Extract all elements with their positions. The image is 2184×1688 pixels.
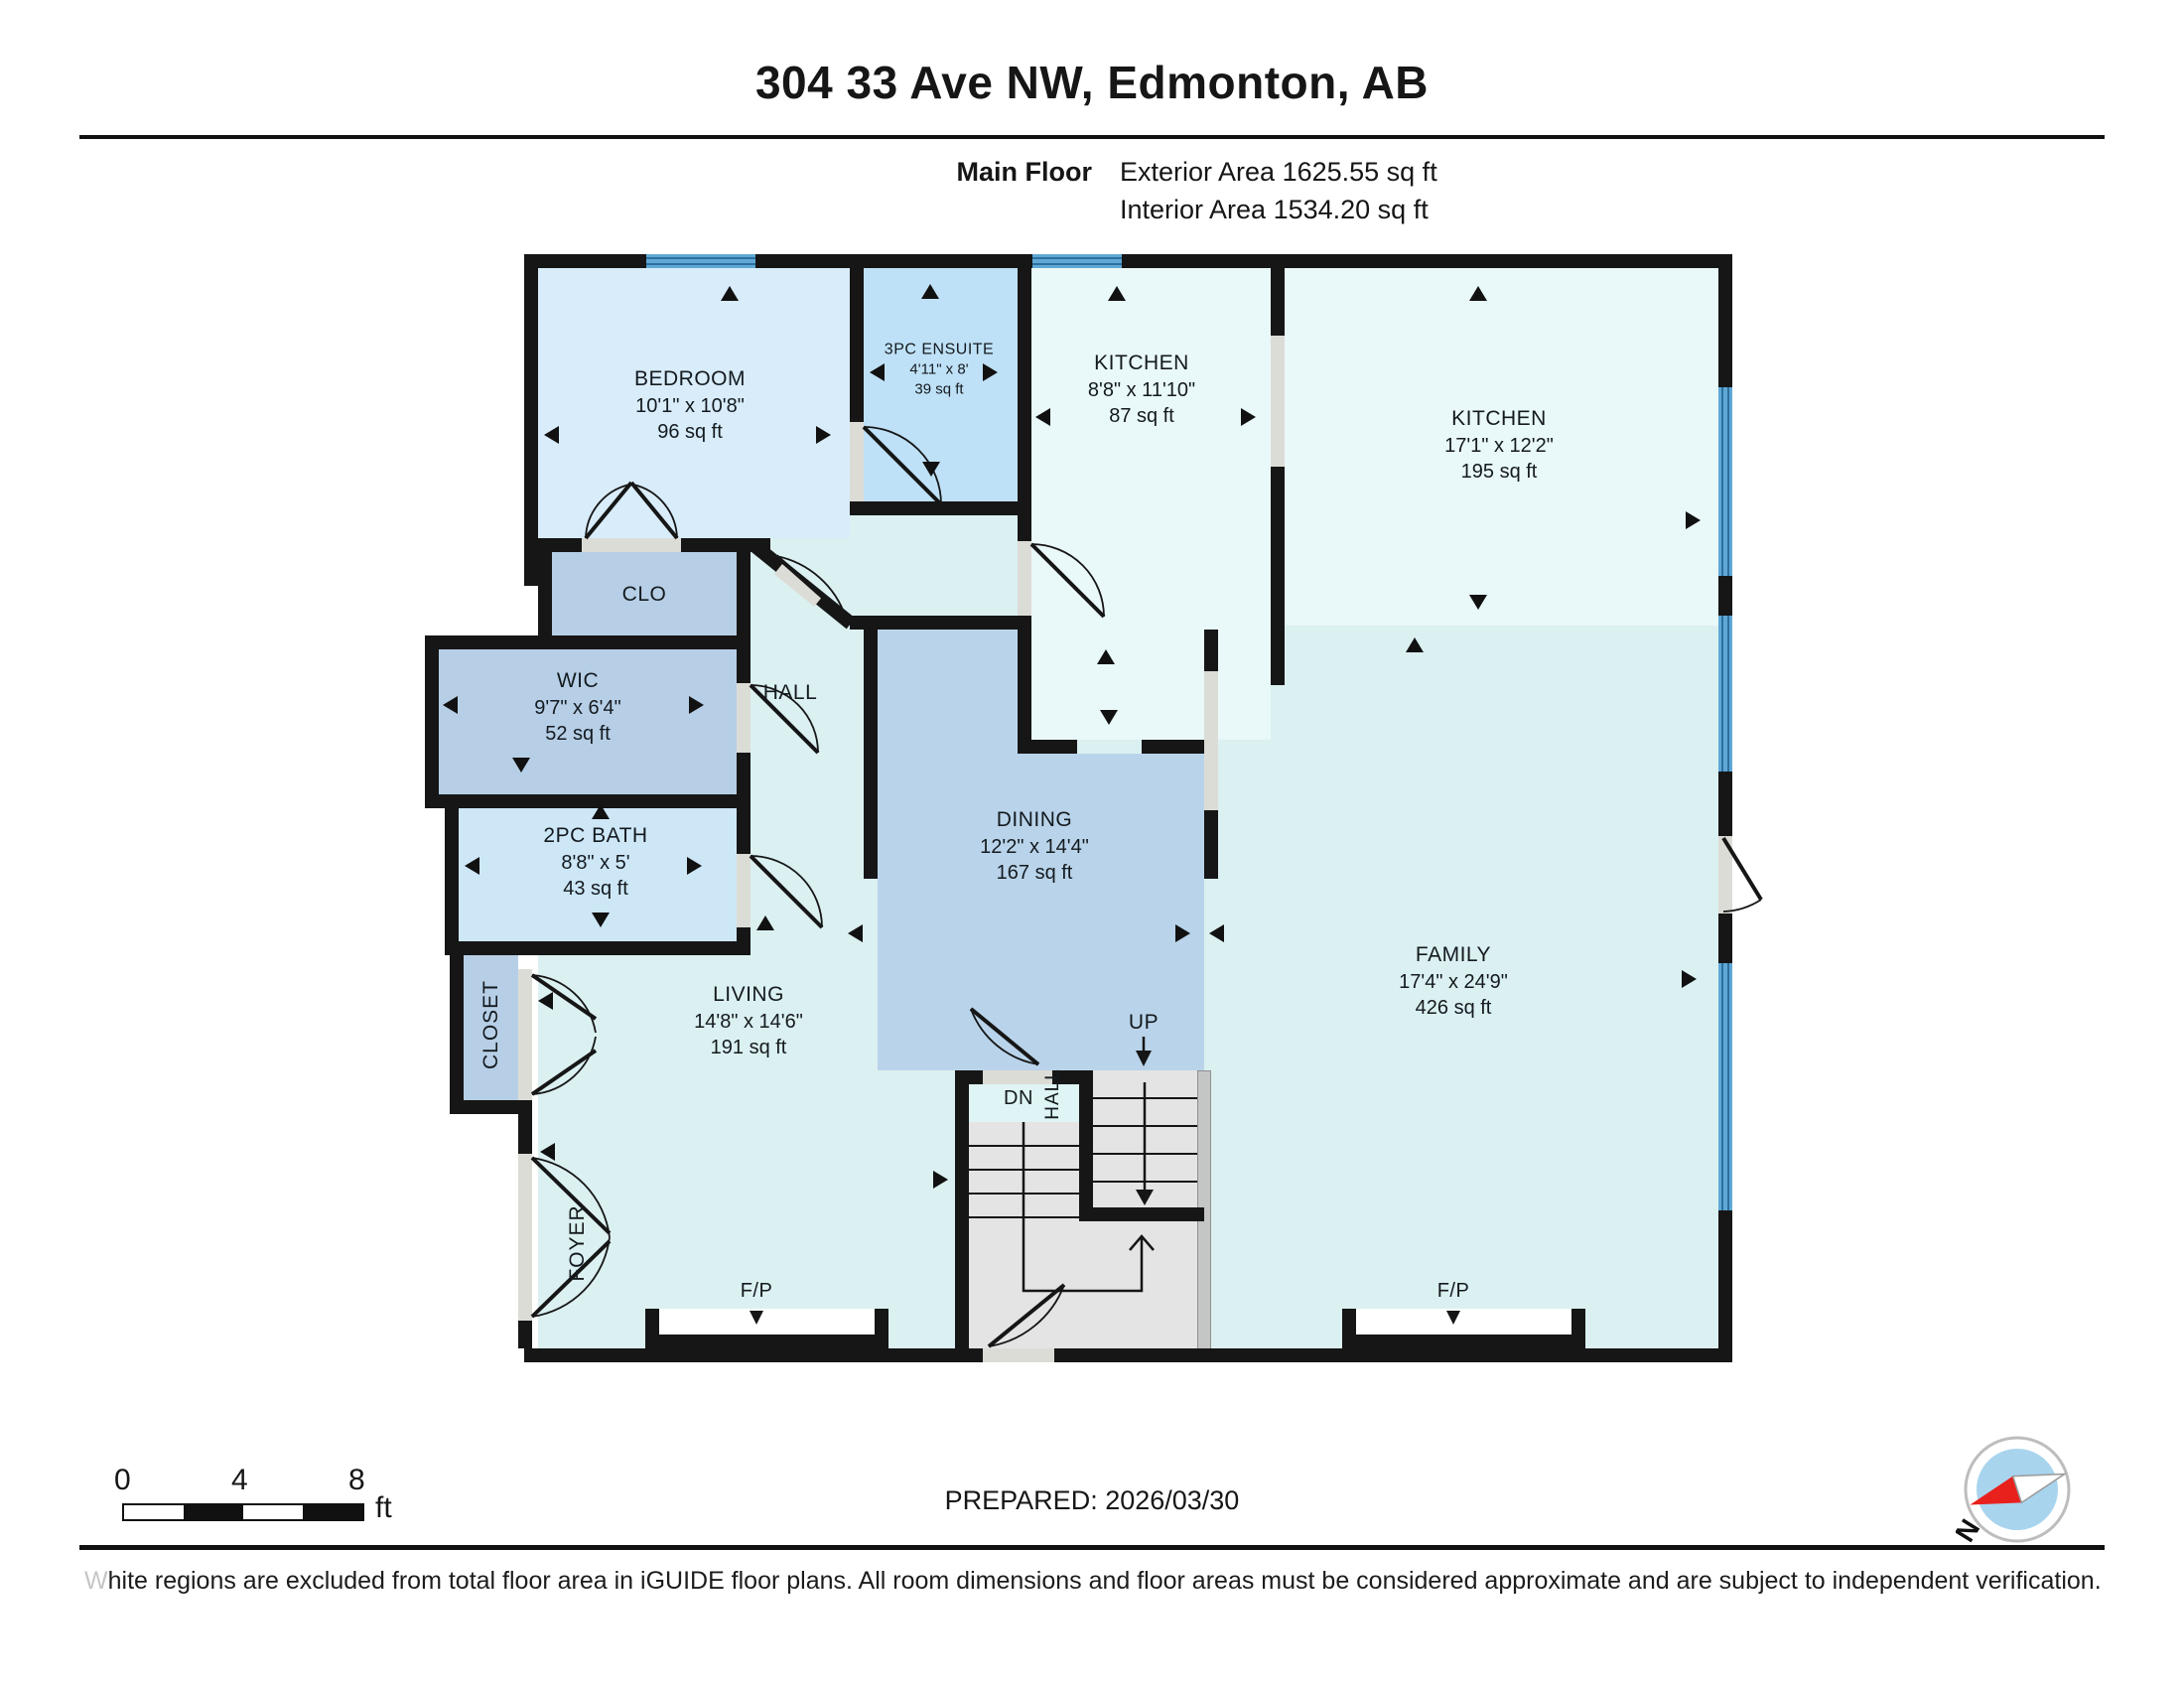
stair-dn-label: DN — [1004, 1085, 1033, 1111]
dim-arrow-icon — [922, 462, 940, 477]
room-label-family: FAMILY 17'4" x 24'9" 426 sq ft — [1399, 941, 1508, 1022]
scale-unit: ft — [375, 1491, 392, 1525]
dim-arrow-icon — [1686, 511, 1701, 529]
room-label-foyer: FOYER — [566, 1204, 590, 1281]
stair-hall-label: HALL — [1042, 1068, 1064, 1120]
room-label-bedroom: BEDROOM 10'1" x 10'8" 96 sq ft — [634, 365, 746, 446]
dim-arrow-icon — [544, 426, 559, 444]
room-label-living: LIVING 14'8" x 14'6" 191 sq ft — [694, 981, 803, 1061]
dim-arrow-icon — [512, 758, 530, 773]
scale-tick-0: 0 — [114, 1464, 131, 1497]
dim-arrow-icon — [1469, 595, 1487, 610]
dim-arrow-icon — [1406, 637, 1424, 652]
room-label-closet: CLOSET — [479, 980, 503, 1069]
dim-arrow-icon — [687, 857, 702, 875]
dim-arrow-icon — [1682, 970, 1697, 988]
dim-arrow-icon — [870, 363, 885, 381]
dim-arrow-icon — [540, 1143, 555, 1161]
dim-arrow-icon — [1097, 649, 1115, 664]
dim-arrow-icon — [933, 1171, 948, 1189]
dim-arrow-icon — [1100, 710, 1118, 725]
fireplace-label: F/P — [741, 1278, 773, 1304]
dim-arrow-icon — [1241, 408, 1256, 426]
dim-arrow-icon — [1035, 408, 1050, 426]
compass-icon: N — [1956, 1432, 2075, 1551]
disclaimer: White regions are excluded from total fl… — [84, 1567, 2102, 1596]
dim-arrow-icon — [592, 913, 610, 927]
room-label-wic: WIC 9'7" x 6'4" 52 sq ft — [534, 667, 620, 748]
dim-arrow-icon — [592, 804, 610, 819]
room-label-ensuite: 3PC ENSUITE 4'11" x 8' 39 sq ft — [885, 340, 994, 400]
dim-arrow-icon — [1108, 286, 1126, 301]
dim-arrow-icon — [1469, 286, 1487, 301]
plan-annotations — [0, 0, 2184, 1688]
footer-divider — [79, 1545, 2105, 1550]
fireplace-label: F/P — [1437, 1278, 1470, 1304]
room-label-dining: DINING 12'2" x 14'4" 167 sq ft — [980, 806, 1089, 887]
scale-tick-8: 8 — [348, 1464, 365, 1497]
dim-arrow-icon — [1209, 924, 1224, 942]
dim-arrow-icon — [756, 915, 774, 930]
prepared-date: PREPARED: 2026/03/30 — [794, 1485, 1390, 1516]
floorplan-page: 304 33 Ave NW, Edmonton, AB Main Floor E… — [0, 0, 2184, 1688]
stair-up-label: UP — [1129, 1009, 1159, 1037]
dim-arrow-icon — [721, 286, 739, 301]
room-label-kitchen-large: KITCHEN 17'1" x 12'2" 195 sq ft — [1444, 405, 1554, 486]
scale-bar-strip — [122, 1503, 364, 1521]
room-label-clo: CLO — [622, 581, 667, 609]
dim-arrow-icon — [689, 696, 704, 714]
scale-tick-4: 4 — [231, 1464, 248, 1497]
room-label-bath: 2PC BATH 8'8" x 5' 43 sq ft — [543, 822, 647, 903]
dim-arrow-icon — [443, 696, 458, 714]
dim-arrow-icon — [848, 924, 863, 942]
disclaimer-text: hite regions are excluded from total flo… — [108, 1567, 2102, 1595]
disclaimer-first-letter: W — [84, 1567, 108, 1595]
room-label-hall: HALL — [763, 679, 818, 707]
dim-arrow-icon — [1175, 924, 1190, 942]
dim-arrow-icon — [465, 857, 479, 875]
room-label-kitchen-small: KITCHEN 8'8" x 11'10" 87 sq ft — [1088, 350, 1195, 430]
dim-arrow-icon — [921, 284, 939, 299]
dim-arrow-icon — [816, 426, 831, 444]
dim-arrow-icon — [538, 992, 553, 1010]
